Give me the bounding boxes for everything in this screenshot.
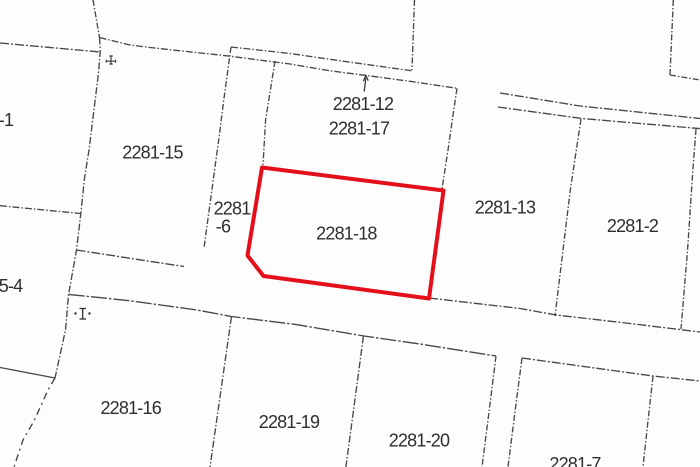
svg-text:2281-15: 2281-15 bbox=[122, 143, 183, 163]
svg-text:2281-16: 2281-16 bbox=[100, 398, 161, 418]
svg-text:2281-20: 2281-20 bbox=[389, 431, 450, 451]
svg-text:-1: -1 bbox=[0, 110, 14, 130]
svg-text:2281-19: 2281-19 bbox=[259, 412, 320, 432]
svg-text:2281-17: 2281-17 bbox=[329, 119, 390, 139]
svg-text:-6: -6 bbox=[216, 217, 231, 237]
svg-text:2281-2: 2281-2 bbox=[607, 216, 659, 236]
svg-text:2281-7: 2281-7 bbox=[549, 454, 601, 467]
svg-text:2281-12: 2281-12 bbox=[333, 94, 394, 114]
svg-text:5-4: 5-4 bbox=[0, 276, 23, 296]
svg-text:2281-18: 2281-18 bbox=[316, 224, 377, 244]
svg-text:2281: 2281 bbox=[214, 199, 252, 219]
svg-text:2281-13: 2281-13 bbox=[475, 198, 536, 218]
